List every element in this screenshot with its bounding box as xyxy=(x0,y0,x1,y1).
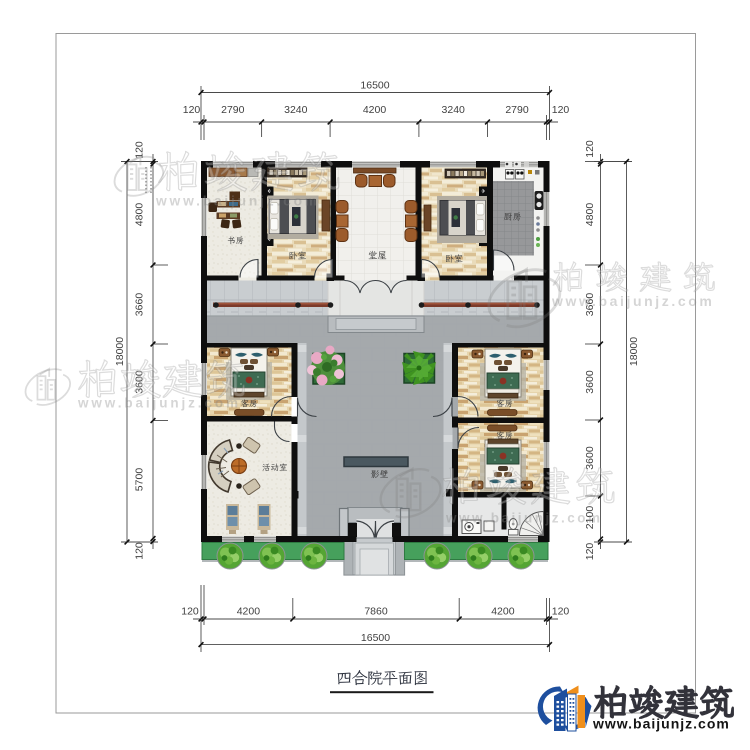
svg-text:4200: 4200 xyxy=(491,606,515,618)
svg-text:4200: 4200 xyxy=(363,104,387,116)
svg-text:3240: 3240 xyxy=(442,104,466,116)
svg-text:5700: 5700 xyxy=(134,468,146,492)
svg-text:120: 120 xyxy=(183,104,201,116)
svg-text:4800: 4800 xyxy=(134,203,146,227)
svg-text:120: 120 xyxy=(181,606,199,618)
svg-text:120: 120 xyxy=(584,140,596,158)
svg-text:18000: 18000 xyxy=(114,337,126,366)
svg-text:www.baijunjz.com: www.baijunjz.com xyxy=(77,396,241,411)
svg-text:3600: 3600 xyxy=(584,446,596,470)
svg-text:4200: 4200 xyxy=(237,606,261,618)
svg-text:18000: 18000 xyxy=(628,337,640,366)
svg-text:3660: 3660 xyxy=(134,293,146,317)
svg-text:120: 120 xyxy=(552,606,570,618)
svg-text:7860: 7860 xyxy=(364,606,388,618)
svg-text:16500: 16500 xyxy=(360,80,389,92)
svg-text:120: 120 xyxy=(552,104,570,116)
svg-text:www.baijunjz.com: www.baijunjz.com xyxy=(155,194,320,209)
svg-text:4800: 4800 xyxy=(584,203,596,227)
svg-text:120: 120 xyxy=(584,543,596,561)
svg-text:120: 120 xyxy=(134,542,146,560)
svg-text:2790: 2790 xyxy=(221,104,245,116)
svg-text:www.baijunjz.com: www.baijunjz.com xyxy=(551,293,714,309)
svg-text:2790: 2790 xyxy=(505,104,529,116)
svg-text:16500: 16500 xyxy=(361,632,390,644)
svg-text:www.baijunjz.com: www.baijunjz.com xyxy=(445,511,603,526)
svg-text:3240: 3240 xyxy=(284,104,308,116)
svg-text:3600: 3600 xyxy=(584,370,596,394)
svg-text:www.baijunjz.com: www.baijunjz.com xyxy=(592,716,730,732)
